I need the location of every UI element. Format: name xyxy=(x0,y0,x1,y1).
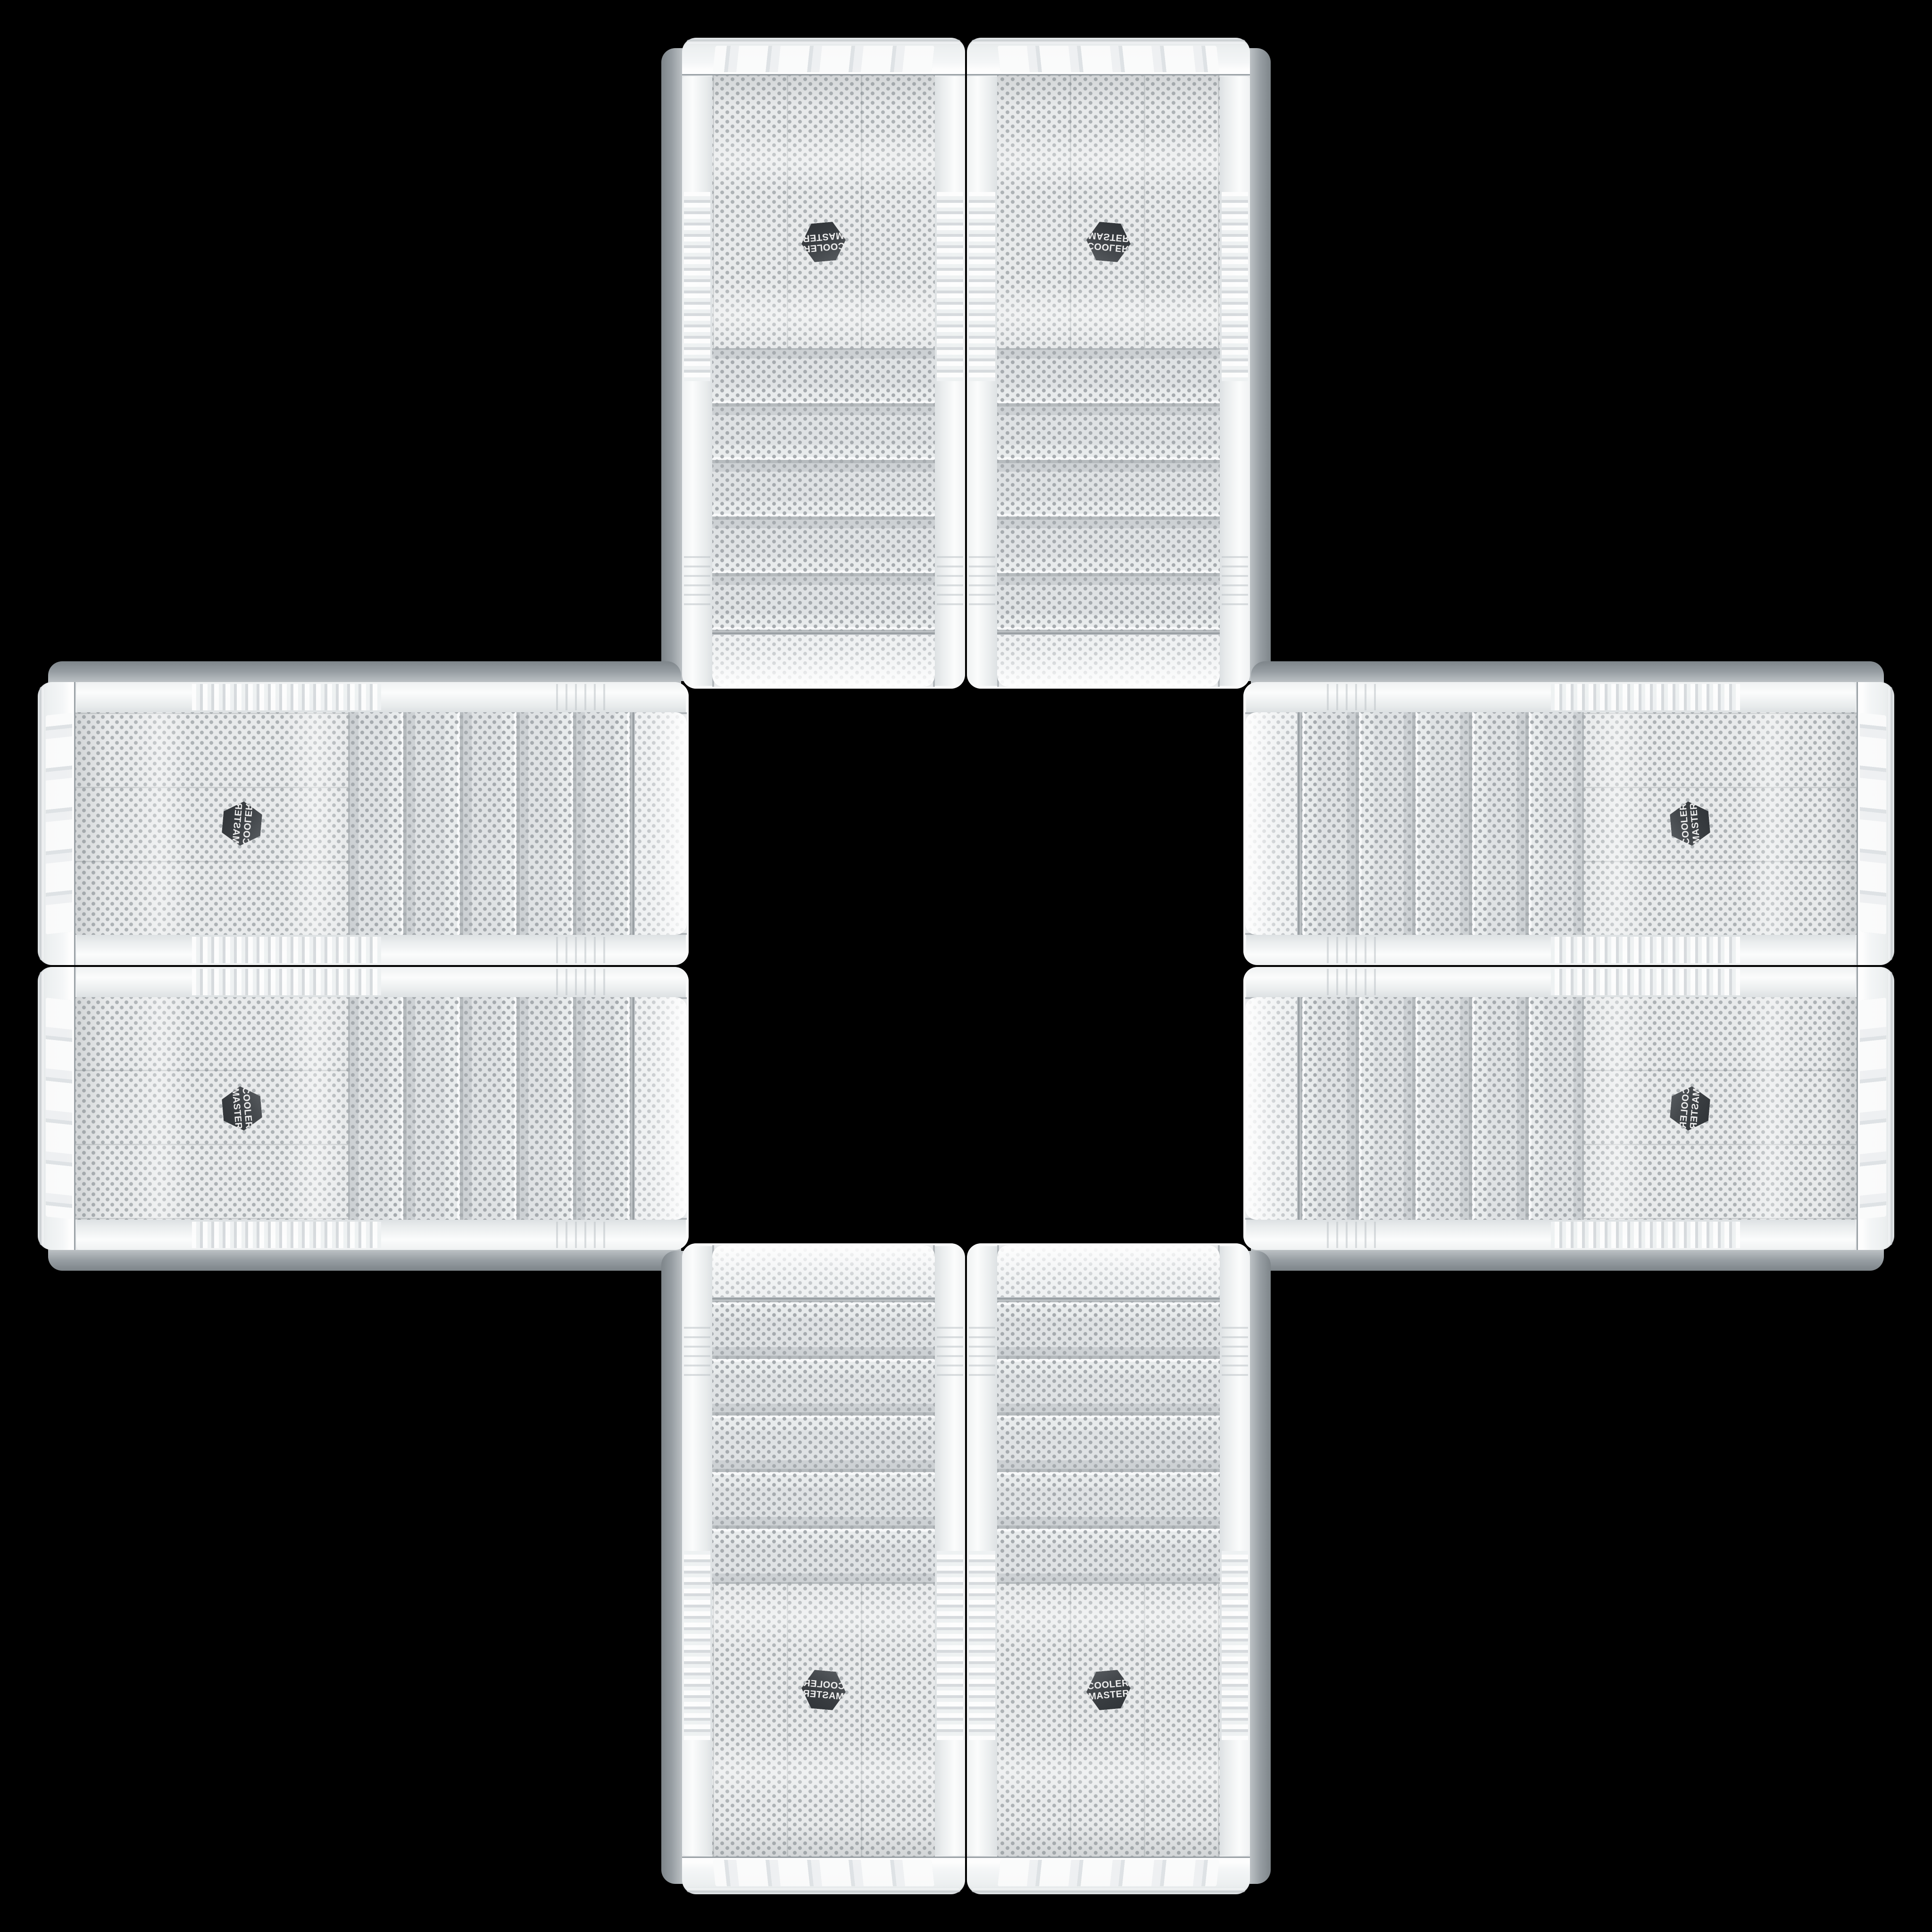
case-bottom-cap xyxy=(38,682,75,965)
case-front-panel: COOLER MASTER xyxy=(997,75,1220,687)
drive-bay-covers xyxy=(997,348,1220,631)
case-top-left: COOLER MASTER xyxy=(682,38,965,689)
case-bottom-cap xyxy=(1857,967,1894,1250)
case-right-top: COOLER MASTER xyxy=(1243,682,1894,965)
case-front-panel: COOLER MASTER xyxy=(1245,712,1857,935)
case-side-panel xyxy=(661,48,684,681)
case-top-mesh-cap xyxy=(997,634,1220,687)
case-rail-right xyxy=(1246,1220,1856,1250)
case-side-panel xyxy=(48,1248,681,1271)
cooler-master-badge: COOLER MASTER xyxy=(1669,800,1711,848)
case-front-panel: COOLER MASTER xyxy=(1245,997,1857,1220)
drive-bay-covers xyxy=(348,997,631,1220)
panel-seam xyxy=(997,631,1220,634)
case-rail-left xyxy=(967,1246,997,1856)
case-left-bottom: COOLER MASTER xyxy=(38,967,689,1250)
case-rail-right xyxy=(76,682,686,712)
case-right-bottom: COOLER MASTER xyxy=(1243,967,1894,1250)
front-mesh: COOLER MASTER xyxy=(997,75,1220,348)
front-mesh: COOLER MASTER xyxy=(75,712,348,935)
pc-case: COOLER MASTER xyxy=(967,1243,1250,1894)
front-mesh: COOLER MASTER xyxy=(712,75,935,348)
case-side-panel xyxy=(1251,661,1884,684)
case-rail-left xyxy=(1246,935,1856,965)
front-mesh: COOLER MASTER xyxy=(997,1584,1220,1857)
case-rail-left xyxy=(1246,967,1856,997)
drive-bay-covers xyxy=(997,1301,1220,1584)
case-rail-right xyxy=(1220,76,1250,686)
cooler-master-badge: COOLER MASTER xyxy=(1085,1669,1133,1711)
case-front-panel: COOLER MASTER xyxy=(997,1245,1220,1857)
case-rail-left xyxy=(76,935,686,965)
case-rail-left xyxy=(76,967,686,997)
case-side-panel xyxy=(1248,48,1271,681)
pc-case: COOLER MASTER xyxy=(1243,967,1894,1250)
case-bottom-cap xyxy=(1857,682,1894,965)
cooler-master-badge: COOLER MASTER xyxy=(1085,221,1133,263)
panel-seam xyxy=(631,997,634,1220)
case-top-mesh-cap xyxy=(997,1245,1220,1298)
case-rail-right xyxy=(76,1220,686,1250)
pc-case: COOLER MASTER xyxy=(1243,682,1894,965)
case-top-mesh-cap xyxy=(634,997,687,1220)
case-side-panel xyxy=(661,1251,684,1884)
panel-seam xyxy=(712,631,935,634)
front-mesh: COOLER MASTER xyxy=(1584,712,1857,935)
case-top-right: COOLER MASTER xyxy=(967,38,1250,689)
case-side-panel xyxy=(1248,1251,1271,1884)
case-bottom-left: COOLER MASTER xyxy=(682,1243,965,1894)
case-rail-left xyxy=(935,76,965,686)
case-bottom-right: COOLER MASTER xyxy=(967,1243,1250,1894)
drive-bay-covers xyxy=(1301,997,1584,1220)
case-side-panel xyxy=(1251,1248,1884,1271)
case-rail-right xyxy=(682,1246,712,1856)
front-mesh: COOLER MASTER xyxy=(1584,997,1857,1220)
front-mesh: COOLER MASTER xyxy=(75,997,348,1220)
case-rail-right xyxy=(1220,1246,1250,1856)
case-rail-left xyxy=(935,1246,965,1856)
case-bottom-cap xyxy=(967,1857,1250,1894)
drive-bay-covers xyxy=(1301,712,1584,935)
case-rail-right xyxy=(682,76,712,686)
case-rail-right xyxy=(1246,682,1856,712)
case-bottom-cap xyxy=(682,38,965,75)
cooler-master-badge: COOLER MASTER xyxy=(221,800,263,848)
front-mesh: COOLER MASTER xyxy=(712,1584,935,1857)
case-top-mesh-cap xyxy=(712,1245,935,1298)
pc-case: COOLER MASTER xyxy=(38,967,689,1250)
cooler-master-badge: COOLER MASTER xyxy=(221,1085,263,1133)
drive-bay-covers xyxy=(348,712,631,935)
case-bottom-cap xyxy=(682,1857,965,1894)
drive-bay-covers xyxy=(712,1301,935,1584)
case-front-panel: COOLER MASTER xyxy=(712,75,935,687)
pc-case: COOLER MASTER xyxy=(38,682,689,965)
case-rail-left xyxy=(967,76,997,686)
pc-case: COOLER MASTER xyxy=(682,1243,965,1894)
pc-case: COOLER MASTER xyxy=(682,38,965,689)
case-top-mesh-cap xyxy=(1245,997,1298,1220)
case-front-panel: COOLER MASTER xyxy=(712,1245,935,1857)
case-top-mesh-cap xyxy=(712,634,935,687)
pc-case: COOLER MASTER xyxy=(967,38,1250,689)
photo-stage: COOLER MASTER COOLER MASTER xyxy=(0,0,1932,1932)
case-front-panel: COOLER MASTER xyxy=(75,997,687,1220)
cooler-master-badge: COOLER MASTER xyxy=(1669,1085,1711,1133)
drive-bay-covers xyxy=(712,348,935,631)
case-top-mesh-cap xyxy=(1245,712,1298,935)
case-side-panel xyxy=(48,661,681,684)
case-top-mesh-cap xyxy=(634,712,687,935)
case-bottom-cap xyxy=(967,38,1250,75)
case-left-top: COOLER MASTER xyxy=(38,682,689,965)
cooler-master-badge: COOLER MASTER xyxy=(800,221,848,263)
panel-seam xyxy=(631,712,634,935)
cooler-master-badge: COOLER MASTER xyxy=(800,1669,848,1711)
case-bottom-cap xyxy=(38,967,75,1250)
case-front-panel: COOLER MASTER xyxy=(75,712,687,935)
